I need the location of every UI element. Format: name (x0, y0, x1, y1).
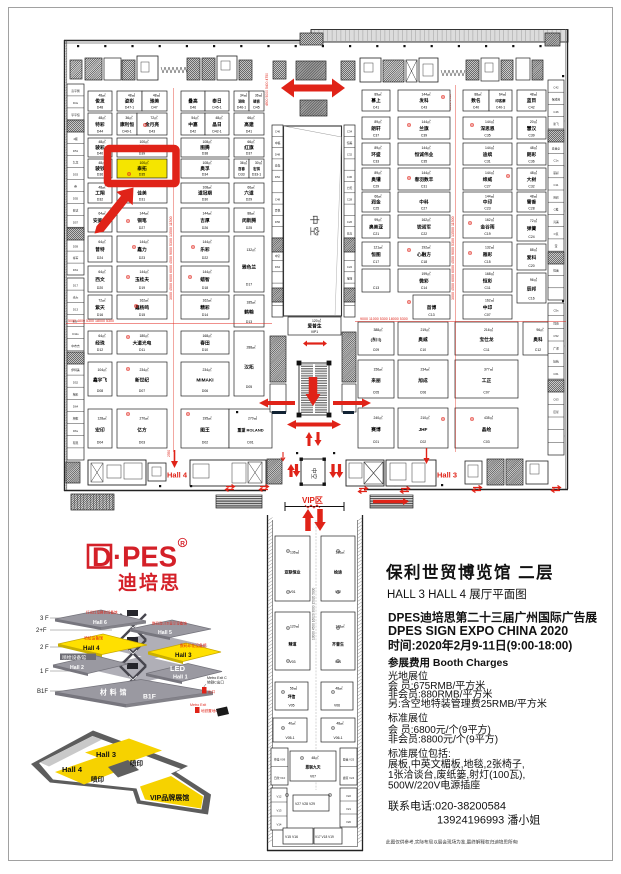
svg-text:雅色兰: 雅色兰 (242, 263, 256, 270)
svg-text:C34: C34 (347, 130, 353, 134)
svg-text:D40: D40 (97, 152, 103, 156)
svg-text:旭成: 旭成 (417, 377, 428, 384)
svg-text:162㎡: 162㎡ (485, 217, 495, 222)
svg-text:普特: 普特 (95, 246, 105, 253)
svg-text:V13: V13 (277, 809, 282, 813)
svg-text:标准展位: 标准展位 (388, 712, 428, 725)
svg-text:R: R (180, 540, 185, 547)
svg-text:100㎡: 100㎡ (139, 160, 149, 165)
svg-text:388㎡: 388㎡ (373, 327, 383, 332)
svg-text:C10: C10 (420, 348, 426, 352)
svg-text:48㎡: 48㎡ (98, 115, 106, 120)
svg-text:V07: V07 (310, 774, 316, 778)
svg-text:来丽: 来丽 (370, 377, 381, 384)
svg-text:Hall 3: Hall 3 (175, 652, 192, 659)
svg-text:康利恒: 康利恒 (120, 121, 134, 128)
svg-text:泰日: 泰日 (211, 98, 221, 105)
svg-text:C27: C27 (484, 184, 490, 188)
svg-text:36㎡: 36㎡ (125, 115, 133, 120)
svg-text:64㎡: 64㎡ (98, 269, 106, 274)
svg-text:9000 11000 5300 18000 53: 9000 11000 5300 18000 5300 (360, 317, 408, 321)
svg-text:66㎡: 66㎡ (374, 193, 382, 198)
svg-text:帅佳 V09: 帅佳 V09 (274, 758, 286, 762)
svg-text:力天: 力天 (347, 186, 353, 190)
svg-text:88㎡: 88㎡ (474, 92, 482, 97)
svg-text:Hall 4: Hall 4 (62, 765, 83, 774)
svg-text:48㎡: 48㎡ (98, 184, 106, 189)
svg-text:C46: C46 (275, 130, 281, 134)
svg-text:66㎡: 66㎡ (247, 184, 255, 189)
svg-text:D23: D23 (139, 256, 145, 260)
svg-text:键喜: 键喜 (252, 99, 260, 104)
svg-text:D47: D47 (151, 106, 157, 110)
svg-text:亚联恒业: 亚联恒业 (285, 569, 301, 575)
svg-text:Hall 4: Hall 4 (167, 471, 188, 480)
svg-text:奥威: 奥威 (418, 336, 428, 343)
svg-text:V03: V03 (289, 660, 295, 664)
svg-text:144㎡: 144㎡ (202, 239, 212, 244)
svg-text:192㎡: 192㎡ (421, 244, 431, 249)
svg-text:185㎡: 185㎡ (246, 300, 256, 305)
svg-text:D12: D12 (97, 348, 103, 352)
svg-text:同德: 同德 (553, 321, 559, 325)
svg-text:48㎡: 48㎡ (98, 92, 106, 97)
svg-text:百春: 百春 (238, 166, 245, 171)
svg-text:C28: C28 (528, 207, 534, 211)
svg-text:C19: C19 (484, 232, 490, 236)
svg-text:D31: D31 (139, 198, 145, 202)
svg-text:48㎡: 48㎡ (153, 92, 161, 97)
svg-text:喷绘设备馆: 喷绘设备馆 (62, 654, 86, 661)
svg-text:C14: C14 (421, 286, 427, 290)
svg-text:心融方: 心融方 (417, 251, 431, 258)
svg-text:C37: C37 (373, 133, 379, 137)
svg-text:D59: D59 (73, 244, 79, 248)
svg-text:D48: D48 (275, 152, 281, 156)
svg-text:C24: C24 (528, 235, 534, 239)
svg-text:伊特美: 伊特美 (71, 368, 80, 372)
svg-text:V01: V01 (289, 590, 295, 594)
svg-text:恒美: 恒美 (553, 269, 559, 273)
svg-text:喷印: 喷印 (130, 759, 144, 768)
svg-text:234㎡: 234㎡ (139, 367, 149, 372)
svg-text:D20: D20 (97, 286, 103, 290)
svg-text:144㎡: 144㎡ (485, 145, 495, 150)
svg-text:大道光电: 大道光电 (133, 339, 152, 346)
svg-text:闵斯腾: 闵斯腾 (242, 217, 256, 224)
svg-text:89㎡: 89㎡ (374, 119, 382, 124)
svg-text:润金: 润金 (371, 199, 381, 206)
svg-text:V21: V21 (346, 807, 351, 811)
svg-text:D26: D26 (202, 226, 208, 230)
svg-text:C35: C35 (421, 159, 427, 163)
svg-text:VIP区: VIP区 (302, 496, 323, 505)
svg-text:道冠期: 道冠期 (198, 190, 212, 197)
svg-text:缔威: 缔威 (483, 176, 493, 183)
svg-text:D14: D14 (202, 313, 208, 317)
svg-text:144㎡: 144㎡ (139, 210, 149, 215)
svg-text:奥科: 奥科 (533, 336, 543, 343)
svg-text:144㎡: 144㎡ (485, 170, 495, 175)
svg-text:C12: C12 (535, 348, 541, 352)
svg-text:经珠: 经珠 (95, 339, 105, 346)
svg-text:C16: C16 (528, 296, 534, 300)
svg-text:恩联九天: 恩联九天 (305, 764, 320, 769)
svg-text:48㎡: 48㎡ (98, 139, 106, 144)
svg-text:C52: C52 (553, 334, 559, 338)
svg-text:(东川): (东川) (371, 336, 382, 342)
svg-text:湖绘: 湖绘 (238, 99, 245, 104)
svg-text:D37: D37 (246, 152, 252, 156)
svg-text:光大: 光大 (73, 295, 79, 299)
svg-text:非会员:8800元/个(9平方): 非会员:8800元/个(9平方) (388, 733, 498, 746)
svg-text:联系电话:020-38200584: 联系电话:020-38200584 (388, 800, 506, 813)
svg-text:4900 5000 5400 4750: 4900 5000 5400 4750 (265, 73, 269, 106)
svg-text:3000 4500 6000 6000 4500 9000: 3000 4500 6000 6000 4500 9000 5300 13500… (451, 216, 455, 300)
svg-text:66㎡: 66㎡ (247, 139, 255, 144)
svg-text:DPES SIGN EXPO CHINA 2020: DPES SIGN EXPO CHINA 2020 (388, 624, 568, 638)
svg-text:恒彩: 恒彩 (483, 277, 493, 284)
svg-text:219㎡: 219㎡ (420, 327, 430, 332)
svg-text:LED: LED (170, 664, 186, 673)
svg-text:D13: D13 (73, 308, 79, 312)
svg-text:九龙: 九龙 (73, 161, 79, 165)
svg-text:慕上: 慕上 (370, 97, 381, 104)
svg-text:C5s: C5s (554, 309, 560, 313)
svg-text:春田: 春田 (200, 339, 210, 346)
svg-text:D24: D24 (97, 256, 103, 260)
svg-text:佳美: 佳美 (137, 190, 147, 197)
svg-text:安达: 安达 (73, 209, 79, 213)
svg-text:紫天: 紫天 (95, 304, 105, 311)
svg-text:保利世贸博览馆 二层: 保利世贸博览馆 二层 (385, 562, 554, 582)
svg-text:D57: D57 (73, 220, 79, 224)
svg-text:骏彩: 骏彩 (95, 144, 105, 151)
svg-text:B1F: B1F (143, 694, 156, 701)
svg-text:99㎡: 99㎡ (374, 217, 382, 222)
svg-text:C43: C43 (421, 105, 427, 109)
svg-text:泰美全: 泰美全 (552, 146, 561, 150)
svg-text:100㎡: 100㎡ (139, 139, 149, 144)
svg-text:144㎡: 144㎡ (139, 269, 149, 274)
svg-text:此图仅供参考,实际布局以展会现场为准,最终解释权归迪培思所有: 此图仅供参考,实际布局以展会现场为准,最终解释权归迪培思所有! (386, 839, 518, 846)
svg-text:百悦: 百悦 (275, 209, 281, 213)
svg-text:144㎡: 144㎡ (139, 239, 149, 244)
svg-text:48㎡: 48㎡ (530, 92, 538, 97)
svg-text:136㎡: 136㎡ (290, 550, 300, 555)
svg-text:C48: C48 (275, 197, 281, 201)
svg-text:汉拓: 汉拓 (244, 364, 254, 371)
svg-text:中空: 中空 (308, 215, 320, 238)
svg-text:微彩: 微彩 (418, 277, 429, 284)
svg-text:D10: D10 (202, 348, 208, 352)
svg-text:六道: 六道 (244, 190, 254, 197)
svg-text:210㎡: 210㎡ (420, 415, 430, 420)
svg-text:C13: C13 (373, 286, 379, 290)
svg-text:喷印: 喷印 (91, 775, 105, 784)
svg-text:展板,中英文楣板,地毯,2张椅子,: 展板,中英文楣板,地毯,2张椅子, (388, 758, 525, 771)
svg-text:48㎡: 48㎡ (336, 720, 344, 725)
svg-text:C09: C09 (373, 348, 379, 352)
svg-text:C35: C35 (484, 133, 490, 137)
svg-text:D32: D32 (97, 198, 103, 202)
svg-text:D45: D45 (253, 106, 259, 110)
svg-text:图王: 图王 (200, 427, 210, 434)
svg-text:234㎡: 234㎡ (202, 367, 212, 372)
svg-text:54㎡: 54㎡ (191, 115, 199, 120)
svg-text:弹簧: 弹簧 (527, 225, 537, 232)
svg-text:48㎡: 48㎡ (335, 686, 343, 691)
svg-text:64㎡: 64㎡ (98, 333, 106, 338)
svg-text:兰旗: 兰旗 (419, 125, 429, 132)
svg-text:108㎡: 108㎡ (202, 160, 212, 165)
svg-text:C03: C03 (483, 440, 489, 444)
svg-text:C17: C17 (373, 260, 379, 264)
svg-text:144㎡: 144㎡ (202, 210, 212, 215)
svg-text:128㎡: 128㎡ (335, 624, 345, 629)
svg-text:89㎡: 89㎡ (374, 145, 382, 150)
svg-text:132㎡: 132㎡ (485, 244, 495, 249)
svg-text:V12: V12 (277, 795, 282, 799)
svg-text:89㎡: 89㎡ (374, 92, 382, 97)
svg-text:108㎡: 108㎡ (202, 184, 212, 189)
svg-text:C63: C63 (553, 397, 559, 401)
svg-text:叁: 叁 (74, 185, 77, 189)
svg-text:72㎡: 72㎡ (98, 297, 106, 302)
svg-text:鑫宇飞: 鑫宇飞 (92, 377, 107, 384)
svg-text:C05: C05 (373, 390, 379, 394)
svg-text:D4s: D4s (73, 101, 79, 105)
svg-text:D34: D34 (202, 173, 208, 177)
svg-text:HALL 3 HALL 4 展厅平面图: HALL 3 HALL 4 展厅平面图 (387, 588, 527, 601)
svg-text:C28: C28 (347, 197, 353, 201)
svg-text:288㎡: 288㎡ (246, 345, 256, 350)
svg-text:156㎡: 156㎡ (373, 366, 383, 371)
svg-text:深思恩: 深思恩 (480, 125, 494, 132)
svg-text:V14: V14 (277, 823, 282, 827)
svg-text:34㎡: 34㎡ (240, 92, 248, 97)
svg-text:驰美: 驰美 (150, 98, 160, 105)
svg-text:D52: D52 (73, 380, 79, 384)
svg-text:发科: 发科 (418, 97, 429, 104)
svg-text:36㎡: 36㎡ (240, 160, 248, 165)
svg-text:金谷雨: 金谷雨 (479, 223, 494, 230)
svg-text:孚平恒: 孚平恒 (71, 113, 80, 117)
svg-text:D30: D30 (202, 198, 208, 202)
svg-text:叠高: 叠高 (188, 98, 198, 105)
svg-text:D42-1: D42-1 (212, 129, 221, 133)
svg-text:D64: D64 (275, 265, 281, 269)
svg-text:中印: 中印 (483, 304, 493, 311)
svg-text:辰邦: 辰邦 (527, 285, 537, 292)
svg-text:D51: D51 (73, 149, 79, 153)
svg-text:V05-1: V05-1 (285, 736, 294, 740)
svg-text:中空: 中空 (310, 468, 318, 480)
svg-text:精彩: 精彩 (200, 304, 210, 311)
svg-text:D01: D01 (247, 440, 253, 444)
svg-text:64㎡: 64㎡ (98, 239, 106, 244)
svg-text:240㎡: 240㎡ (373, 415, 383, 420)
svg-text:绘迪: 绘迪 (334, 569, 342, 575)
svg-text:162㎡: 162㎡ (139, 297, 149, 302)
svg-text:巨星: 巨星 (553, 410, 559, 414)
svg-text:C11: C11 (554, 183, 559, 187)
svg-text:D33: D33 (238, 173, 244, 177)
svg-text:D22: D22 (202, 256, 208, 260)
svg-text:C23: C23 (484, 207, 490, 211)
svg-text:Hall 6: Hall 6 (93, 620, 107, 626)
svg-text:D08: D08 (97, 389, 103, 393)
svg-text:西文: 西文 (95, 276, 105, 283)
svg-text:参展费用 Booth Charges: 参展费用 Booth Charges (388, 656, 508, 669)
svg-text:朗彩: 朗彩 (527, 151, 537, 158)
svg-text:C42: C42 (528, 105, 534, 109)
svg-text:姿彩: 姿彩 (125, 98, 135, 105)
svg-text:144㎡: 144㎡ (421, 92, 431, 97)
svg-text:40㎡: 40㎡ (288, 720, 296, 725)
svg-text:D11s: D11s (72, 332, 79, 336)
svg-text:D17: D17 (246, 282, 252, 286)
svg-text:2350: 2350 (167, 450, 171, 457)
svg-text:鹤翰: 鹤翰 (244, 309, 254, 316)
svg-text:Metro Exit C: Metro Exit C (207, 676, 227, 680)
svg-text:V05: V05 (288, 704, 294, 708)
svg-text:铜笔: 铜笔 (137, 217, 147, 224)
svg-text:C41: C41 (373, 105, 379, 109)
svg-text:D06: D06 (202, 389, 208, 393)
svg-text:标准展位包括:: 标准展位包括: (388, 747, 451, 760)
svg-text:D52: D52 (275, 175, 281, 179)
svg-text:D29: D29 (246, 198, 252, 202)
svg-text:泰拓: 泰拓 (136, 165, 147, 172)
svg-text:D42: D42 (190, 129, 196, 133)
svg-text:接纳: 接纳 (553, 359, 559, 363)
svg-text:Hall 2: Hall 2 (70, 665, 84, 671)
svg-text:C42: C42 (553, 85, 559, 89)
svg-text:72㎡: 72㎡ (150, 115, 158, 120)
svg-text:恒美: 恒美 (347, 141, 353, 145)
svg-text:·PES: ·PES (113, 542, 177, 574)
svg-text:赛博: 赛博 (370, 426, 381, 433)
svg-text:48㎡: 48㎡ (530, 193, 538, 198)
svg-text:工正: 工正 (482, 377, 492, 384)
svg-text:66㎡: 66㎡ (247, 115, 255, 120)
svg-text:玉桂夫: 玉桂夫 (135, 276, 149, 283)
svg-text:199㎡: 199㎡ (421, 271, 431, 276)
svg-text:大树: 大树 (527, 176, 537, 183)
svg-text:朗轩: 朗轩 (371, 125, 381, 132)
svg-text:D18: D18 (202, 286, 208, 290)
svg-text:C31: C31 (484, 159, 490, 163)
svg-text:时间:2020年2月9-11日(9:00-18:00): 时间:2020年2月9-11日(9:00-18:00) (388, 639, 572, 653)
svg-text:C推: C推 (554, 208, 559, 212)
svg-text:108㎡: 108㎡ (202, 139, 212, 144)
svg-text:精道: 精道 (289, 641, 297, 647)
svg-text:216㎡: 216㎡ (484, 327, 494, 332)
svg-text:中印: 中印 (483, 199, 493, 206)
svg-text:C焦: C焦 (554, 232, 559, 236)
svg-text:1张洽谈台,废纸篓,射灯(100瓦),: 1张洽谈台,废纸篓,射灯(100瓦), (388, 768, 525, 781)
svg-text:D43: D43 (149, 129, 155, 133)
svg-text:慧汉: 慧汉 (527, 125, 537, 132)
svg-text:V22: V22 (346, 794, 351, 798)
svg-text:高建: 高建 (244, 121, 254, 128)
svg-text:D40-1: D40-1 (122, 129, 131, 133)
svg-text:D11: D11 (139, 348, 145, 352)
svg-text:数码及LED显示设备馆: 数码及LED显示设备馆 (152, 621, 187, 626)
svg-text:D6s: D6s (73, 429, 79, 433)
svg-text:蜡智: 蜡智 (200, 276, 210, 283)
svg-text:Hall 4: Hall 4 (83, 645, 100, 652)
svg-text:地铁C出口: 地铁C出口 (207, 680, 224, 685)
svg-text:出口: 出口 (208, 689, 216, 694)
svg-text:168㎡: 168㎡ (485, 271, 495, 276)
svg-text:日欣 V10: 日欣 V10 (274, 776, 286, 780)
svg-text:恒诚伟业: 恒诚伟业 (415, 151, 434, 158)
svg-text:128㎡: 128㎡ (97, 416, 107, 421)
svg-text:96㎡: 96㎡ (536, 327, 544, 332)
svg-text:D: D (92, 542, 112, 572)
svg-text:C1s: C1s (554, 159, 560, 163)
svg-text:121㎡: 121㎡ (373, 244, 383, 249)
svg-text:144㎡: 144㎡ (202, 269, 212, 274)
svg-text:120㎡: 120㎡ (290, 624, 300, 629)
svg-text:D36: D36 (97, 173, 103, 177)
svg-text:工翔: 工翔 (95, 190, 105, 197)
svg-text:中福: 中福 (275, 141, 281, 145)
svg-text:中科: 中科 (419, 199, 429, 206)
svg-text:168㎡: 168㎡ (202, 333, 212, 338)
svg-text:相框: 相框 (73, 417, 79, 421)
svg-text:D02: D02 (202, 440, 208, 444)
svg-text:VIP品牌展馆: VIP品牌展馆 (150, 793, 189, 802)
svg-text:C36: C36 (528, 159, 534, 163)
svg-text:榕彩: 榕彩 (73, 393, 79, 397)
svg-text:D61: D61 (73, 268, 79, 272)
svg-text:Hall 1: Hall 1 (173, 675, 188, 681)
svg-text:蓝目: 蓝目 (527, 97, 537, 104)
svg-text:48㎡: 48㎡ (128, 92, 136, 97)
svg-text:日高: 日高 (347, 231, 353, 235)
svg-text:材料馆: 材料馆 (100, 688, 129, 697)
svg-text:C39: C39 (528, 133, 534, 137)
svg-text:48㎡: 48㎡ (530, 170, 538, 175)
svg-text:D45-1: D45-1 (212, 106, 221, 110)
svg-text:新世纪: 新世纪 (135, 377, 149, 384)
svg-text:D48: D48 (97, 106, 103, 110)
svg-text:V17 V18 V19: V17 V18 V19 (315, 835, 334, 839)
svg-text:D47-1: D47-1 (125, 106, 134, 110)
svg-text:特彩: 特彩 (95, 121, 105, 128)
svg-text:Hall 3: Hall 3 (437, 471, 457, 480)
svg-text:鑫力: 鑫力 (136, 246, 147, 253)
svg-text:88㎡: 88㎡ (530, 247, 538, 252)
svg-text:C21: C21 (373, 232, 379, 236)
svg-text:D53: D53 (73, 173, 79, 177)
svg-text:中布吉: 中布吉 (71, 344, 80, 348)
svg-text:234㎡: 234㎡ (420, 366, 430, 371)
svg-text:首博: 首博 (427, 304, 437, 311)
svg-text:36㎡: 36㎡ (255, 92, 263, 97)
svg-text:D39: D39 (139, 152, 145, 156)
svg-text:广深: 广深 (553, 347, 559, 351)
svg-text:宏印: 宏印 (95, 427, 105, 434)
svg-text:恒图: 恒图 (371, 251, 381, 258)
svg-text:VIP1: VIP1 (311, 330, 318, 334)
svg-text:有限: 有限 (73, 441, 79, 445)
svg-text:C13: C13 (428, 313, 434, 317)
svg-text:JHF: JHF (419, 427, 428, 432)
